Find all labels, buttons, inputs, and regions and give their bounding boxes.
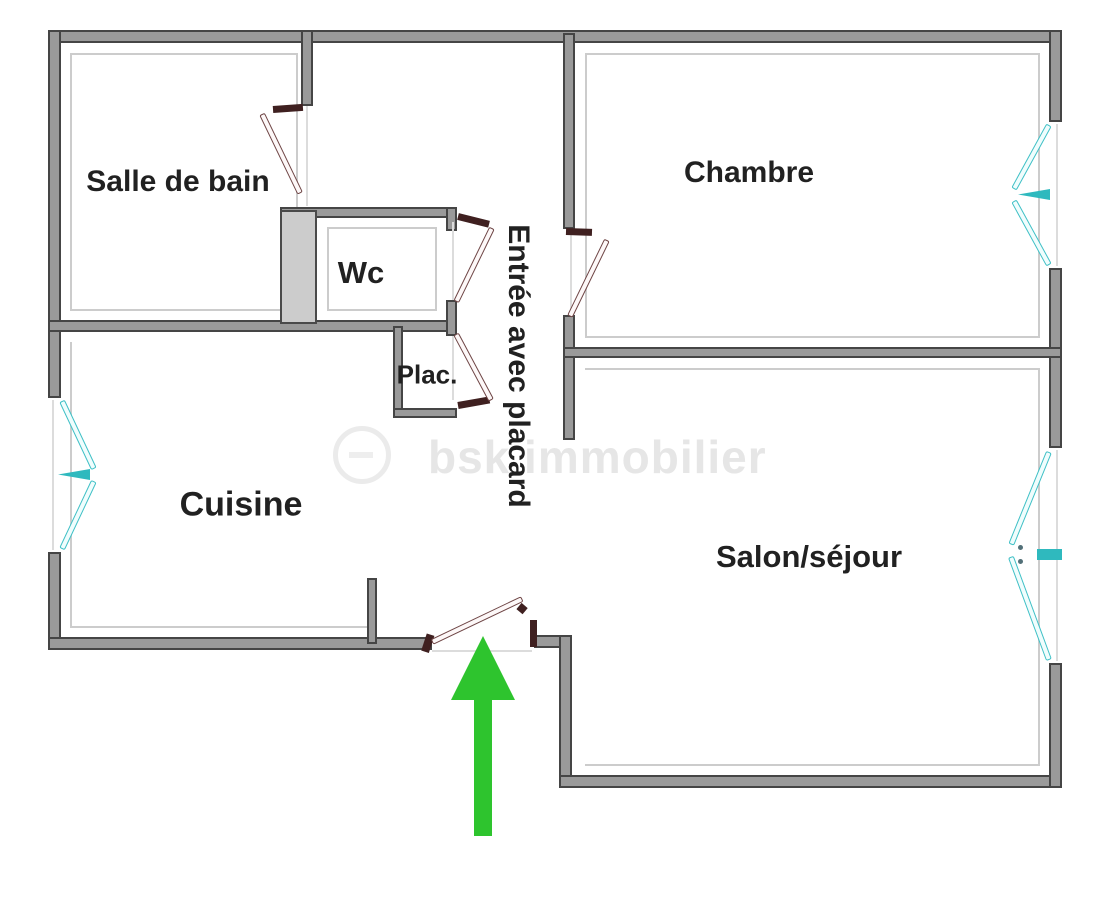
inner-line-kitchen-left [70,342,72,628]
wall-right-lower [1049,663,1062,788]
living-window-dot-top-icon [1018,545,1023,550]
label-closet: Plac. [397,360,458,391]
wc-door-swing-icon [453,227,494,303]
entrance-door-jamb-icon [530,620,537,647]
entrance-arrow-shaft [474,696,492,836]
closet-door-swing-icon [453,333,494,402]
wall-closet-bottom [393,408,457,418]
threshold-window-kitchen [52,400,54,550]
closet-door-hinge-icon [457,396,490,408]
wall-kitchen-stub [367,578,377,644]
wall-top [48,30,1062,43]
wall-entry-right-upper [563,33,575,229]
bedroom-door-hinge-icon [566,228,592,236]
label-wc: Wc [338,255,385,291]
inner-outline-bedroom [585,53,1040,338]
watermark-logo-bar [349,452,373,458]
living-window-leaf-bottom-icon [1008,556,1052,661]
wall-left-lower [48,552,61,649]
label-living-room: Salon/séjour [716,539,902,575]
kitchen-window-leaf-top-icon [59,400,96,470]
label-bedroom: Chambre [684,156,814,190]
entrance-arrow-icon [451,636,515,700]
inner-line-living-right [1038,368,1040,766]
wall-wc-left-shaded [280,210,317,324]
wall-right-top [1049,30,1062,122]
label-bathroom: Salle de bain [86,165,269,199]
living-window-dot-bottom-icon [1018,559,1023,564]
inner-line-living-top [585,368,1040,370]
wall-bedroom-bottom [563,347,1062,358]
living-window-leaf-top-icon [1008,451,1051,546]
label-entry: Entrée avec placard [501,224,535,508]
label-kitchen: Cuisine [180,486,303,525]
wall-entry-right-lower [563,315,575,440]
bathroom-door-hinge-icon [273,104,303,113]
inner-line-living-bottom [585,764,1040,766]
wall-left-upper [48,30,61,398]
entrance-door-latch-dot-icon [516,603,527,614]
wall-bathroom-right [301,30,313,106]
wall-bottom-living [559,775,1062,788]
threshold-bathroom-door [306,106,308,206]
watermark-text: bsk immobilier [428,430,767,484]
wall-right-middle [1049,268,1062,448]
threshold-wc-door [452,222,454,300]
wall-closet-right [446,300,457,336]
kitchen-window-leaf-bottom-icon [59,480,96,550]
kitchen-window-tick-icon [58,469,90,480]
wall-step-vertical [559,635,572,788]
threshold-bedroom-door [570,232,572,315]
living-window-tick-icon [1037,549,1062,560]
threshold-window-bedroom [1056,124,1058,266]
inner-line-kitchen-bottom [70,626,370,628]
wc-door-hinge-icon [457,213,490,228]
floor-plan: bsk immobilier [0,0,1116,897]
